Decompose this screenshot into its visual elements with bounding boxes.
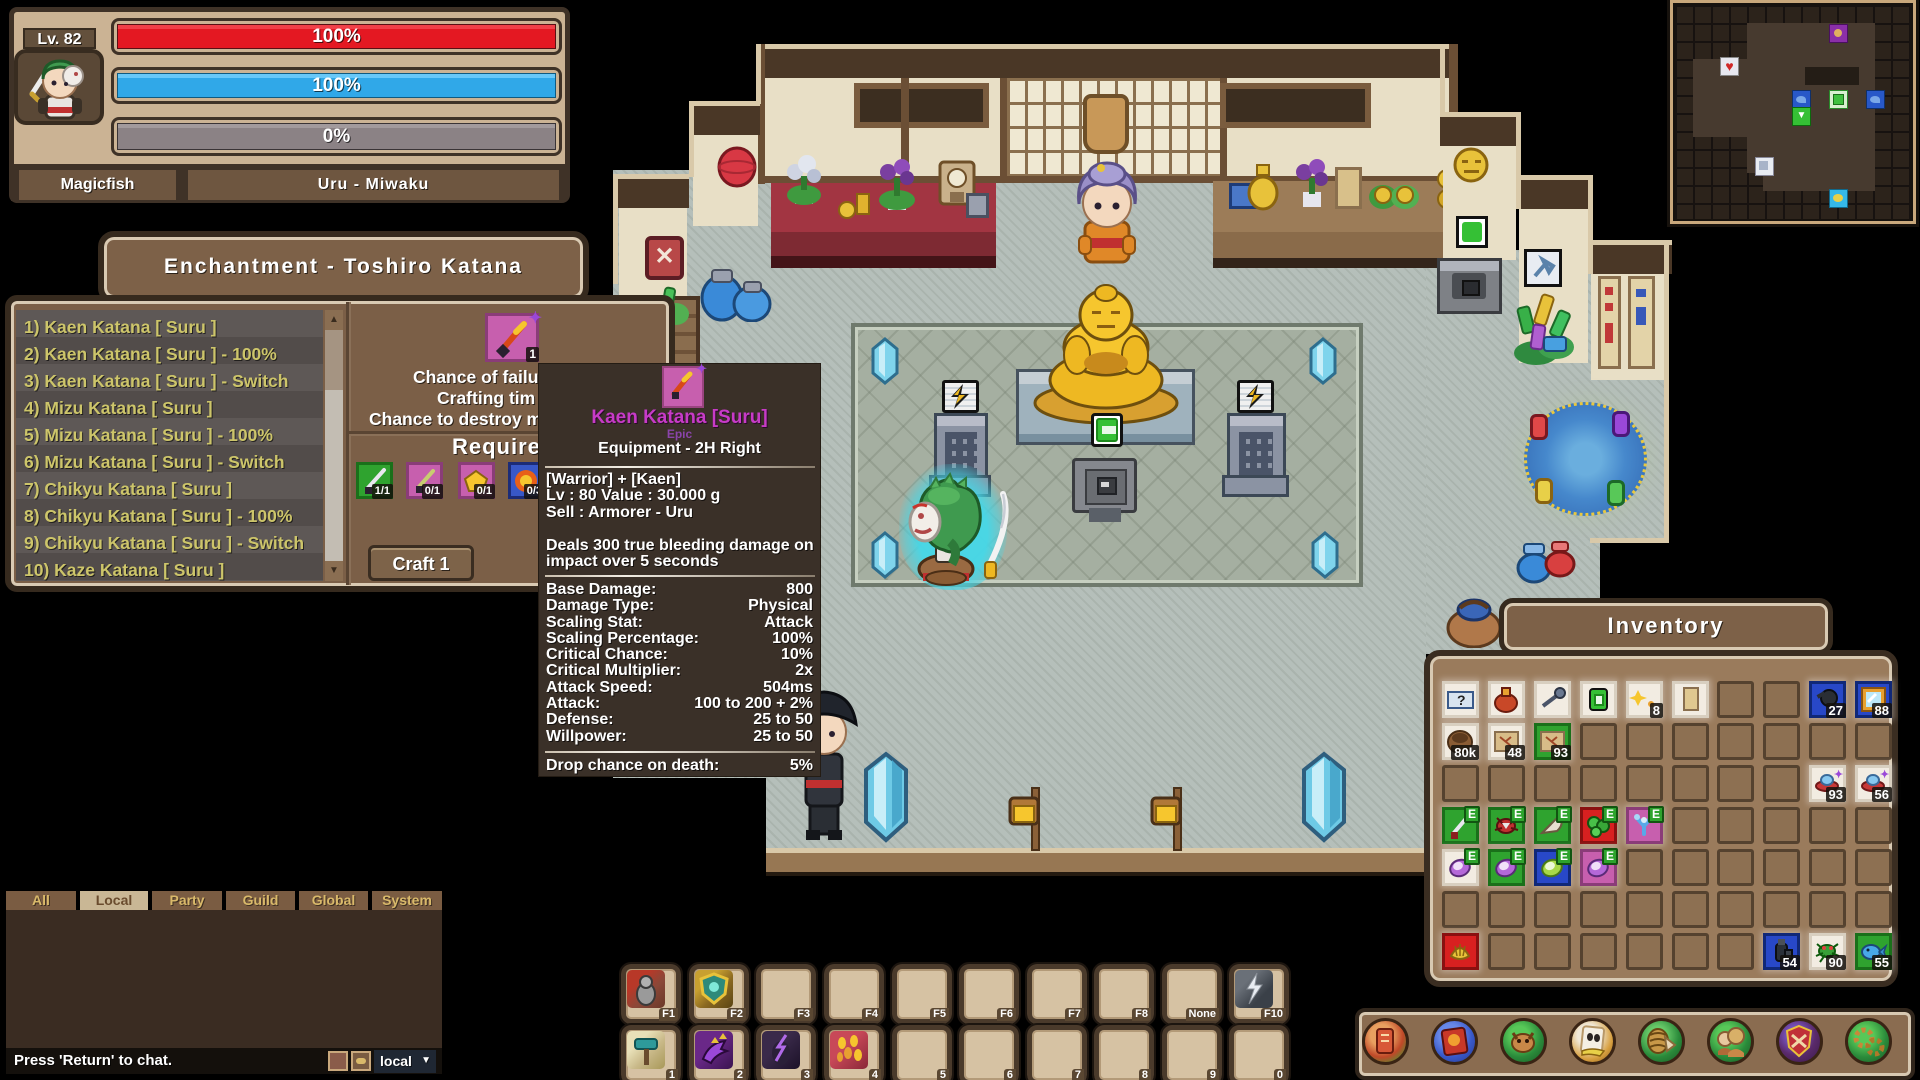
- svg-text:✦: ✦: [1880, 769, 1889, 781]
- svg-text:?: ?: [1457, 692, 1466, 708]
- svg-text:✦: ✦: [1834, 769, 1843, 781]
